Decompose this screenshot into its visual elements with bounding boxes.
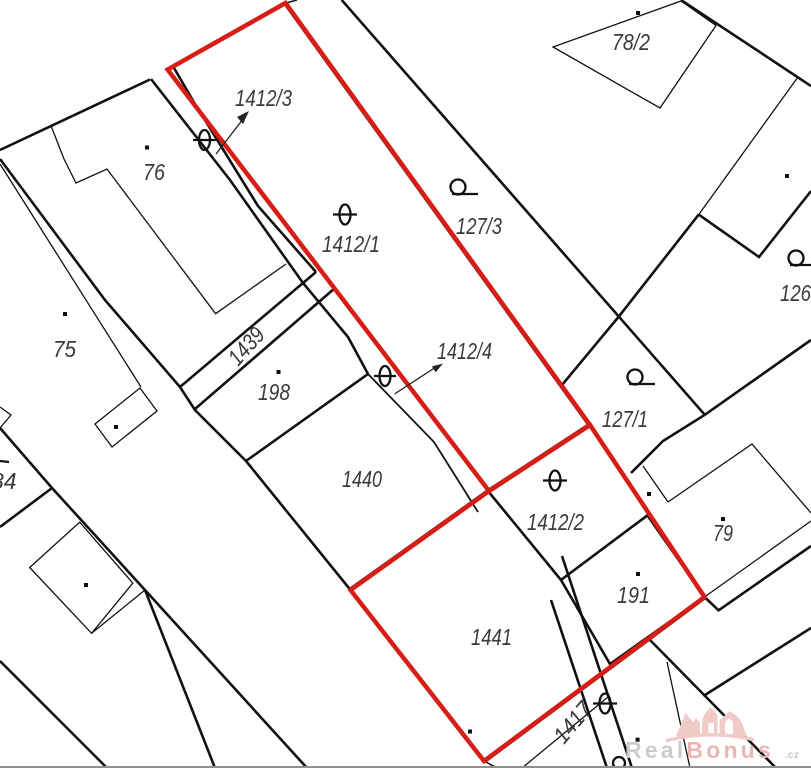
svg-text:84: 84 <box>0 468 17 494</box>
svg-text:127/1: 127/1 <box>602 406 648 432</box>
svg-text:1441: 1441 <box>471 624 512 650</box>
svg-text:191: 191 <box>617 582 650 608</box>
svg-text:1412/2: 1412/2 <box>527 509 584 535</box>
svg-text:79: 79 <box>713 520 733 546</box>
svg-text:RealBonus: RealBonus <box>625 737 774 763</box>
svg-text:75: 75 <box>53 336 76 362</box>
svg-text:78/2: 78/2 <box>612 29 650 55</box>
svg-text:198: 198 <box>258 379 290 405</box>
svg-text:1440: 1440 <box>342 466 382 492</box>
svg-text:126: 126 <box>780 280 811 306</box>
svg-text:1412/1: 1412/1 <box>322 231 380 257</box>
svg-text:76: 76 <box>143 159 165 185</box>
svg-text:.cz: .cz <box>785 749 799 761</box>
svg-text:1412/3: 1412/3 <box>235 85 292 111</box>
svg-text:127/3: 127/3 <box>456 213 502 239</box>
svg-text:1412/4: 1412/4 <box>437 338 492 364</box>
